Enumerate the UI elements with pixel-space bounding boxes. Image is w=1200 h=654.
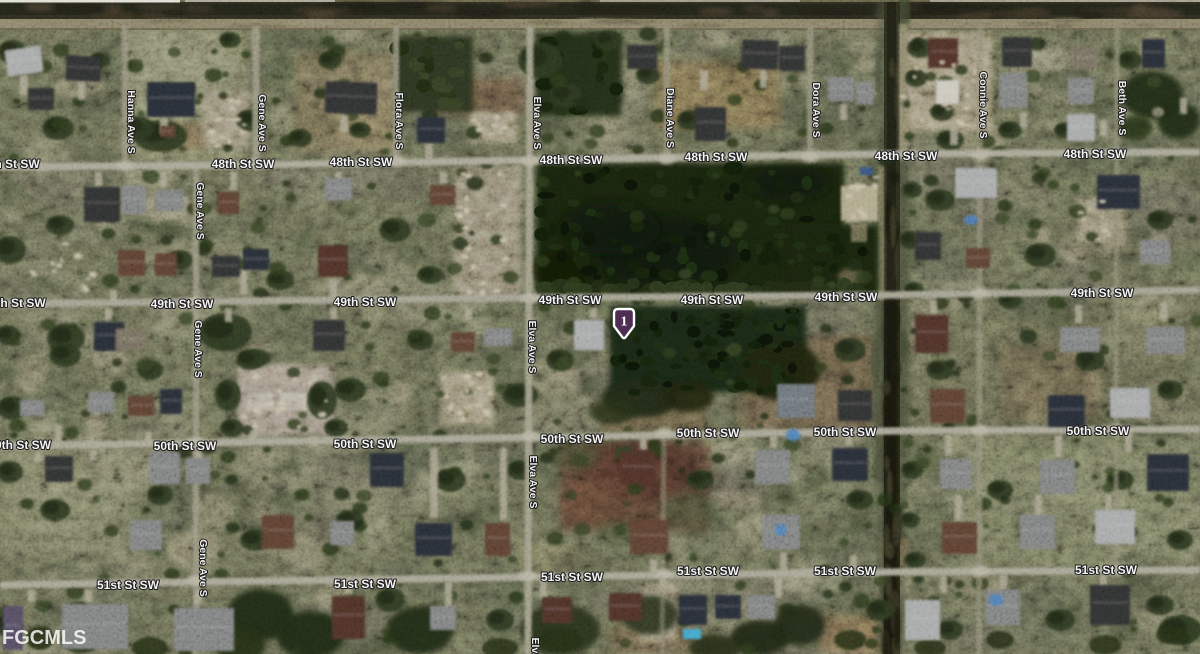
svg-text:51st St SW: 51st St SW bbox=[541, 570, 604, 584]
svg-text:50th St SW: 50th St SW bbox=[334, 437, 397, 451]
svg-text:50th St SW: 50th St SW bbox=[1067, 424, 1130, 438]
svg-text:51st St SW: 51st St SW bbox=[1075, 563, 1138, 577]
svg-text:Beth Ave S: Beth Ave S bbox=[1116, 81, 1128, 136]
svg-text:49th St SW: 49th St SW bbox=[1071, 286, 1134, 300]
svg-text:49th St SW: 49th St SW bbox=[334, 295, 397, 309]
svg-text:49th St SW: 49th St SW bbox=[681, 293, 744, 307]
svg-text:50th St SW: 50th St SW bbox=[677, 426, 740, 440]
svg-text:51st St SW: 51st St SW bbox=[334, 577, 397, 591]
svg-text:Gene Ave S: Gene Ave S bbox=[192, 320, 204, 378]
svg-text:th St SW: th St SW bbox=[0, 296, 46, 310]
svg-text:48th St SW: 48th St SW bbox=[330, 155, 393, 169]
svg-text:51st St SW: 51st St SW bbox=[677, 564, 740, 578]
svg-text:51st St SW: 51st St SW bbox=[814, 564, 877, 578]
svg-text:1: 1 bbox=[621, 315, 628, 330]
svg-text:Elva Ave S: Elva Ave S bbox=[531, 97, 543, 150]
svg-text:FGCMLS: FGCMLS bbox=[2, 627, 86, 649]
svg-text:51st St SW: 51st St SW bbox=[97, 578, 160, 592]
svg-text:48th St SW: 48th St SW bbox=[540, 153, 603, 167]
svg-text:48th St SW: 48th St SW bbox=[212, 157, 275, 171]
svg-text:Dora Ave S: Dora Ave S bbox=[810, 82, 822, 137]
svg-text:48th St SW: 48th St SW bbox=[875, 149, 938, 163]
svg-text:48th St SW: 48th St SW bbox=[685, 150, 748, 164]
svg-text:50th St SW: 50th St SW bbox=[814, 425, 877, 439]
svg-text:Gene Ave S: Gene Ave S bbox=[197, 539, 209, 597]
svg-text:50th St SW: 50th St SW bbox=[541, 432, 604, 446]
svg-text:49th St SW: 49th St SW bbox=[151, 297, 214, 311]
svg-text:Flora Ave S: Flora Ave S bbox=[393, 93, 405, 150]
svg-text:Gene Ave S: Gene Ave S bbox=[256, 94, 268, 152]
svg-text:Diane Ave S: Diane Ave S bbox=[664, 88, 676, 148]
svg-text:49th St SW: 49th St SW bbox=[815, 290, 878, 304]
svg-text:Elva Ave S: Elva Ave S bbox=[526, 321, 538, 374]
svg-text:Gene Ave S: Gene Ave S bbox=[194, 182, 206, 240]
svg-text:Elva Ave S: Elva Ave S bbox=[527, 456, 539, 509]
svg-text:Elva Ave S: Elva Ave S bbox=[529, 638, 541, 654]
svg-text:Connie Ave S: Connie Ave S bbox=[977, 72, 989, 139]
svg-text:48th St SW: 48th St SW bbox=[1064, 147, 1127, 161]
svg-text:0th St SW: 0th St SW bbox=[0, 438, 52, 452]
svg-text:Hanna Ave S: Hanna Ave S bbox=[125, 90, 137, 153]
svg-text:h St SW: h St SW bbox=[0, 157, 40, 171]
svg-text:49th St SW: 49th St SW bbox=[539, 293, 602, 307]
svg-text:50th St SW: 50th St SW bbox=[154, 439, 217, 453]
